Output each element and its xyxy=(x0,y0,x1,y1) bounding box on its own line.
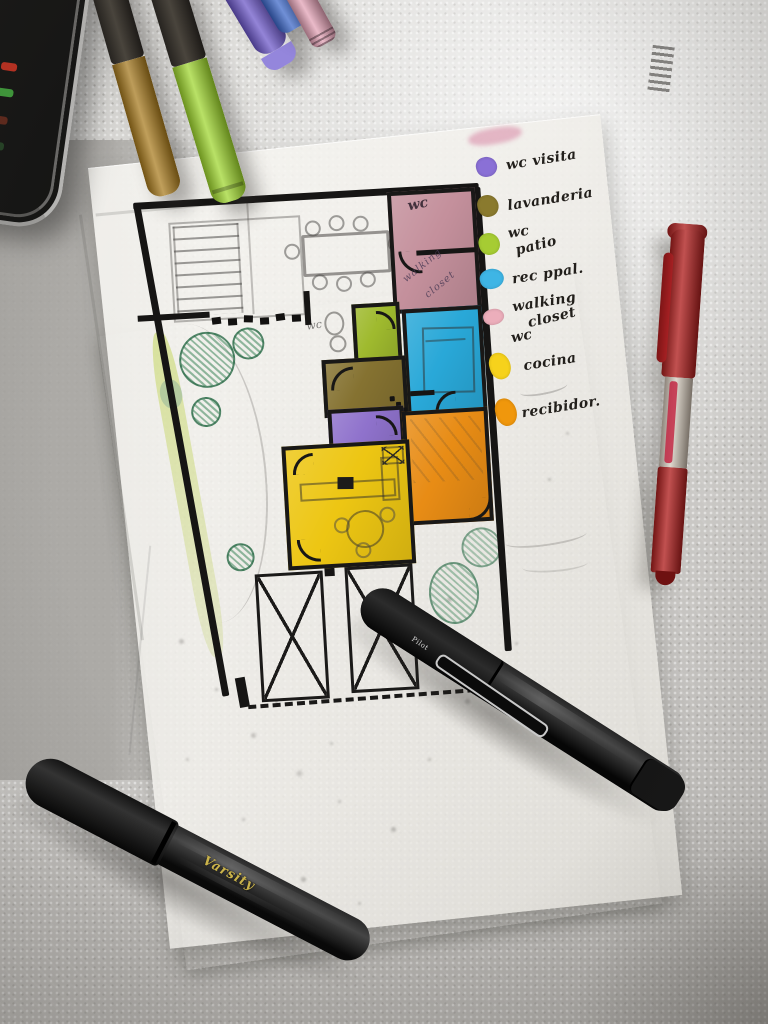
photo-vignette xyxy=(0,0,768,1024)
photo-scene: wc wc walking closet xyxy=(0,0,768,1024)
